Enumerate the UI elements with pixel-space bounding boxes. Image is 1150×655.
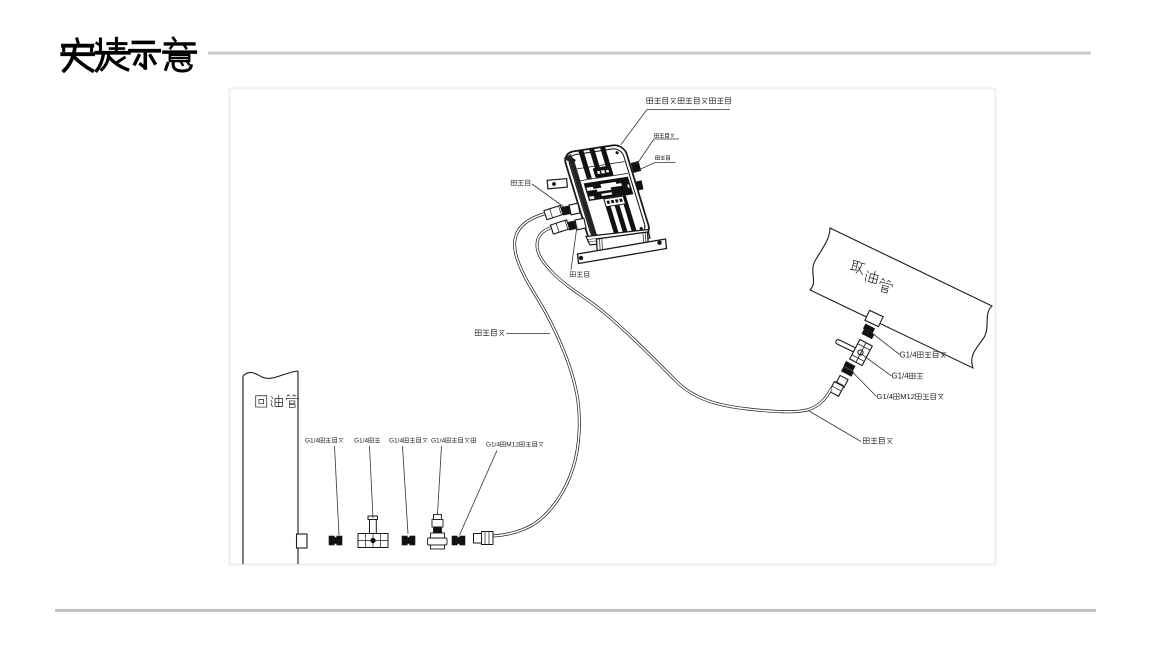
svg-text:G1/4: G1/4	[431, 437, 445, 444]
svg-text:G1/4: G1/4	[877, 392, 893, 401]
svg-text:G1/4: G1/4	[900, 350, 918, 359]
svg-text:M12: M12	[506, 441, 519, 448]
svg-text:M12: M12	[900, 392, 915, 401]
svg-text:G1/4: G1/4	[389, 437, 403, 444]
svg-text:G1/4: G1/4	[305, 437, 319, 444]
svg-text:G1/4: G1/4	[892, 372, 910, 381]
svg-text:G1/4: G1/4	[486, 441, 500, 448]
svg-text:G1/4: G1/4	[354, 437, 368, 444]
